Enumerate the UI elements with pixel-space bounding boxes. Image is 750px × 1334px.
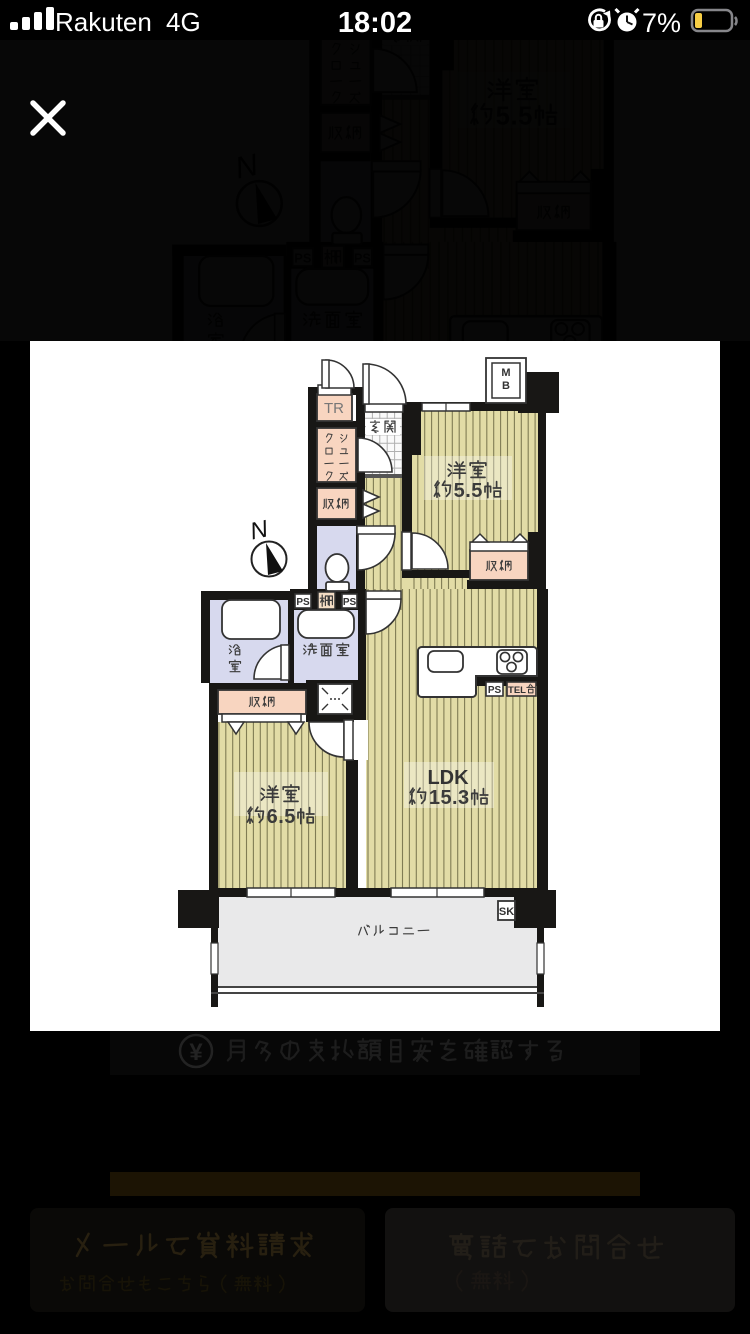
svg-text:TEL: TEL [508,685,526,696]
svg-text:B: B [502,380,510,392]
svg-text:4G: 4G [166,7,201,37]
svg-text:3: 3 [458,787,469,809]
svg-text:5: 5 [471,480,482,502]
svg-text:Rakuten: Rakuten [55,7,152,37]
svg-text:5: 5 [440,787,451,809]
svg-text:1: 1 [429,787,440,809]
svg-text:PS: PS [488,685,502,696]
svg-text:M: M [501,367,510,379]
svg-text:5: 5 [284,806,295,828]
svg-text:6: 6 [267,806,278,828]
svg-text:LDK: LDK [427,767,469,789]
svg-text:5: 5 [454,480,465,502]
svg-text:7%: 7% [642,8,681,38]
svg-text:PS: PS [296,597,310,608]
svg-text:.: . [465,480,471,502]
svg-text:SK: SK [499,906,514,918]
svg-text:TR: TR [324,400,344,417]
svg-text:18:02: 18:02 [338,7,412,39]
svg-text:.: . [278,806,284,828]
svg-text:¥: ¥ [189,1039,203,1066]
svg-text:PS: PS [343,597,357,608]
svg-text:.: . [452,787,458,809]
